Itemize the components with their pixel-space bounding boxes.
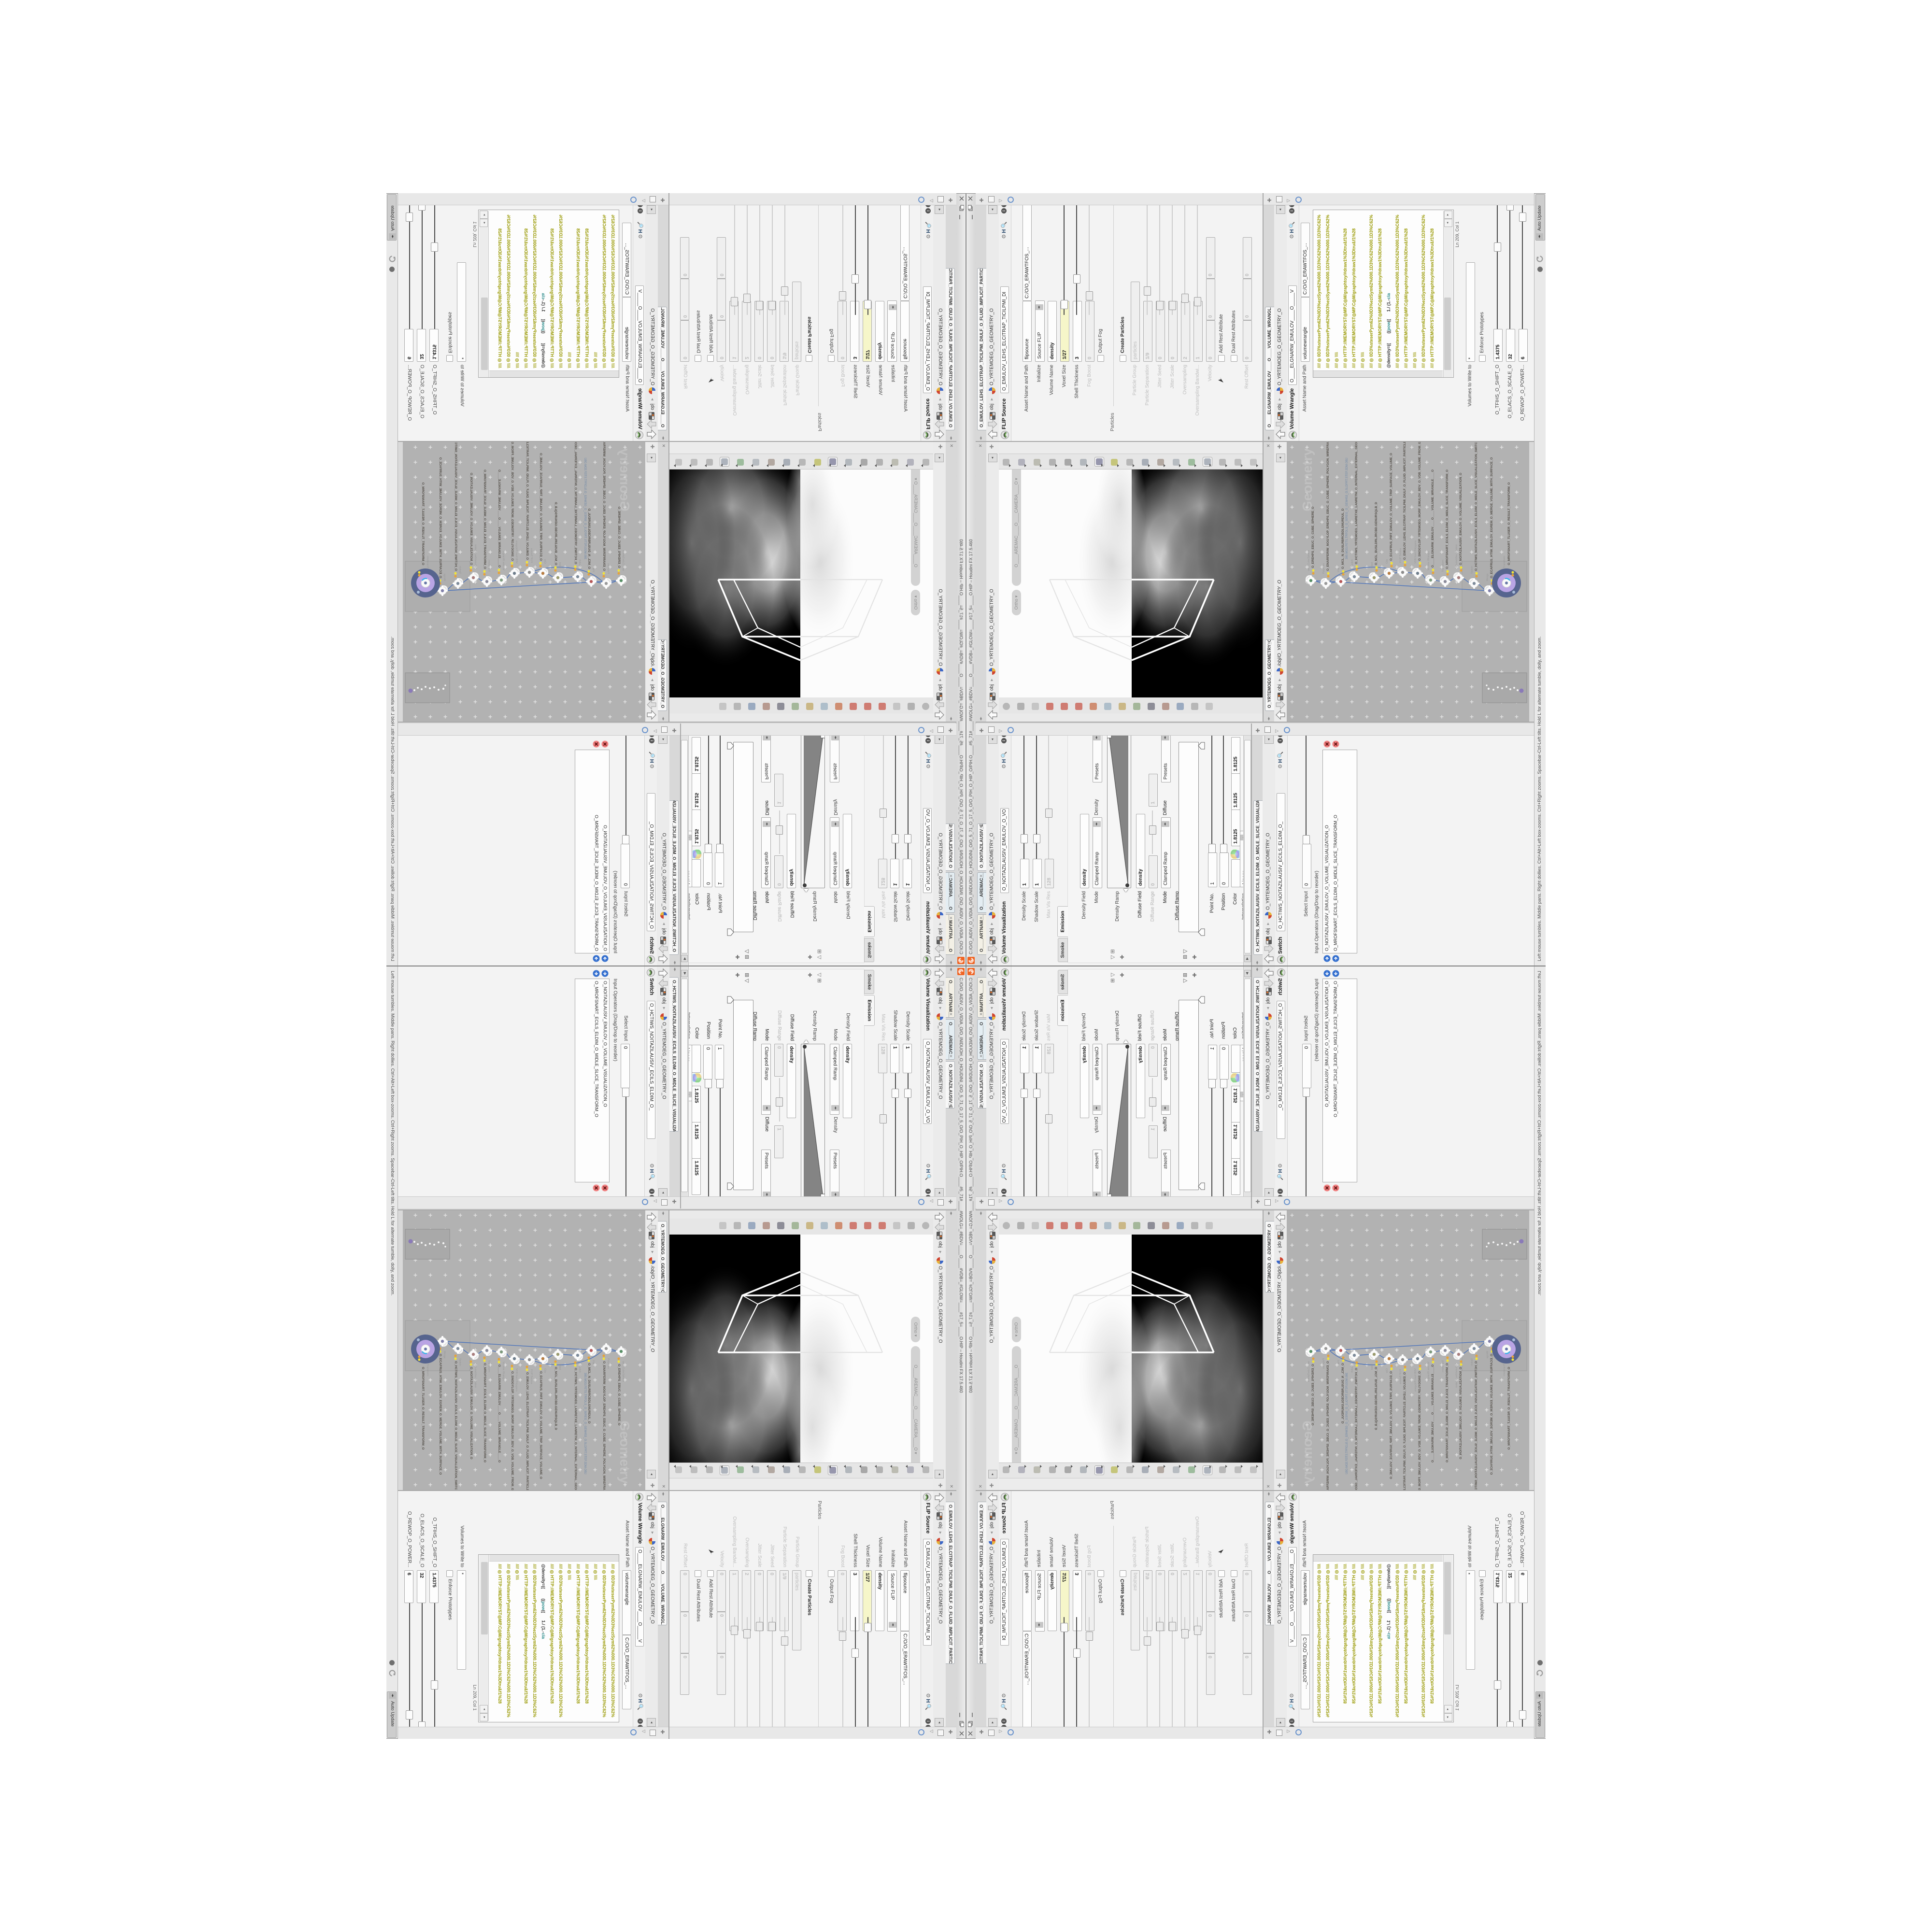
svg-text:O_NOITAZILAUSIV_EMULOV_O_VOLUM: O_NOITAZILAUSIV_EMULOV_O_VOLUME_VISUALIZ… xyxy=(1459,473,1463,565)
svg-text:Clip: Clip xyxy=(1386,559,1389,564)
svg-text:PolyWire: PolyWire xyxy=(1322,1358,1325,1369)
svg-text:Merge: Merge xyxy=(1486,1351,1489,1359)
svg-text:VolumeVisualization: VolumeVisualization xyxy=(1455,544,1458,568)
svg-text:PolyWire: PolyWire xyxy=(607,563,610,574)
svg-text:Transform: Transform xyxy=(1503,556,1506,568)
svg-text:O____ELGNARW_EMULOV____O____VO: O____ELGNARW_EMULOV____O____VOLUME_WRANG… xyxy=(497,469,501,568)
svg-text:O_HCTIWS_YRTEMOEG_LANRETXE_LAN: O_HCTIWS_YRTEMOEG_LANRETXE_LANRETNI_O_IN… xyxy=(574,1368,577,1490)
svg-text:ao__CubeSphere: ao__CubeSphere xyxy=(1307,1361,1310,1382)
svg-text:O_MCL_N_DUSLRBRCBDLGNURDUL_D: O_MCL_N_DUSLRBRCBDLGNURDUL_D xyxy=(587,1363,591,1424)
svg-text:O_ENARFERIW_NOGYLOP_EREHPS_EBU: O_ENARFERIW_NOGYLOP_EREHPS_EBUC_O_CUBE_S… xyxy=(602,1361,606,1490)
svg-text:Volume Wrangle: Volume Wrangle xyxy=(502,551,505,570)
svg-text:O_HCTIWS_YRTEMOEG_LANRETXE_LAN: O_HCTIWS_YRTEMOEG_LANRETXE_LANRETNI_O_IN… xyxy=(1355,1368,1358,1490)
svg-text:O_MCL_N_DUSLRBRCBDLGNURDUL_D: O_MCL_N_DUSLRBRCBDLGNURDUL_D xyxy=(1341,508,1345,569)
svg-text:Transform: Transform xyxy=(1442,1360,1445,1372)
svg-text:O_SNOGYLOP_YRTEMOEG_MORF_EMULO: O_SNOGYLOP_YRTEMOEG_MORF_EMULOV_BDV_O_VD… xyxy=(1418,442,1421,561)
svg-text:380.MO3.PETS.TRPDLS_O_50REG_O_: 380.MO3.PETS.TRPDLS_O_50REG_O_GEM453_O.S… xyxy=(1346,1373,1349,1474)
svg-text:O_EMULOV_LEHS_ELCITRAP_TICILPM: O_EMULOV_LEHS_ELCITRAP_TICILPMI_DIULF_O_… xyxy=(1403,442,1406,560)
svg-text:O_MROFSNART_ECILS_ELDIM_O_MIDL: O_MROFSNART_ECILS_ELDIM_O_MIDLE_SLICE_TR… xyxy=(1446,1363,1449,1463)
svg-text:O_NOITAZILAUSIV_EMULOV_O_VOLUM: O_NOITAZILAUSIV_EMULOV_O_VOLUME_VISUALIZ… xyxy=(469,473,473,565)
svg-text:Volume Wrangle: Volume Wrangle xyxy=(1427,551,1430,570)
svg-text:O_MCL_N_DUSLRBRCBDLGNURDUL_D: O_MCL_N_DUSLRBRCBDLGNURDUL_D xyxy=(587,508,591,569)
svg-text:Transform: Transform xyxy=(1503,1364,1506,1376)
svg-text:VolumeVisualization: VolumeVisualization xyxy=(474,1364,477,1388)
svg-text:Transform: Transform xyxy=(487,1360,490,1372)
svg-text:O_SNOGYLOP_YRTEMOEG_MORF_EMULO: O_SNOGYLOP_YRTEMOEG_MORF_EMULOV_BDV_O_VD… xyxy=(511,442,514,561)
svg-text:O_NOITAZILAUSIV_EMULOV_O_VOLUM: O_NOITAZILAUSIV_EMULOV_O_VOLUME_VISUALIZ… xyxy=(469,1367,473,1459)
svg-text:O_HCTIWS_YRTEMOEG_LANRETXE_LAN: O_HCTIWS_YRTEMOEG_LANRETXE_LANRETNI_O_IN… xyxy=(574,442,577,564)
svg-text:380.MO3.PETS.TRPDLS_O_50REG_O_: 380.MO3.PETS.TRPDLS_O_50REG_O_GEM453_O.S… xyxy=(583,458,586,559)
svg-text:O_NCL_BUSLDRLJRCBD.GENURSQLB_D: O_NCL_BUSLDRLJRCBD.GENURSQLB_D xyxy=(554,1367,557,1430)
svg-text:Switch: Switch xyxy=(458,566,461,574)
svg-text:Switch: Switch xyxy=(1351,1365,1354,1373)
svg-text:O_ECAFRUS_HTIW_EMULOV_EGREM_O_: O_ECAFRUS_HTIW_EMULOV_EGREM_O_MERGE_VOLU… xyxy=(1490,1354,1493,1475)
svg-text:File: File xyxy=(1337,1360,1340,1364)
svg-text:O_ECAFRUS_PIRT_EMULOV_O_VOLUME: O_ECAFRUS_PIRT_EMULOV_O_VOLUME_TRIP_SURF… xyxy=(1390,1371,1393,1479)
svg-text:Geometry: Geometry xyxy=(1300,1421,1315,1484)
svg-text:O_ECAFRUS_HTIW_EMULOV_EGREM_O_: O_ECAFRUS_HTIW_EMULOV_EGREM_O_MERGE_VOLU… xyxy=(1490,457,1493,578)
svg-text:Switch: Switch xyxy=(1471,566,1474,574)
svg-text:Volume Wrangle: Volume Wrangle xyxy=(1427,1362,1430,1381)
svg-text:Switch: Switch xyxy=(578,559,581,567)
svg-text:Clip: Clip xyxy=(543,1368,546,1373)
svg-text:O_ECAFRUS_PIRT_EMULOV_O_VOLUME: O_ECAFRUS_PIRT_EMULOV_O_VOLUME_TRIP_SURF… xyxy=(539,453,542,561)
svg-text:Switch: Switch xyxy=(578,1365,581,1373)
svg-text:O_SNOGYLOP_YRTEMOEG_MORF_EMULO: O_SNOGYLOP_YRTEMOEG_MORF_EMULOV_BDV_O_VD… xyxy=(1418,1371,1421,1490)
svg-text:O_MROFSNART_TLUSER_O_RESULT_TR: O_MROFSNART_TLUSER_O_RESULT_TRANSFORM_O xyxy=(421,1367,425,1449)
svg-text:O_NCL_BUSLDRLJRCBD.GENURSQLB_D: O_NCL_BUSLDRLJRCBD.GENURSQLB_D xyxy=(554,502,557,565)
svg-text:O____ELGNARW_EMULOV____O____VO: O____ELGNARW_EMULOV____O____VOLUME_WRANG… xyxy=(497,1364,501,1463)
svg-text:Transform: Transform xyxy=(426,1364,429,1376)
svg-text:O_MROFSNART_ECILS_ELDIM_O_MIDL: O_MROFSNART_ECILS_ELDIM_O_MIDLE_SLICE_TR… xyxy=(483,1363,486,1463)
svg-text:O_EREHPS_EBUC_O_CUBE_SPHERE_O: O_EREHPS_EBUC_O_CUBE_SPHERE_O xyxy=(1311,1364,1315,1425)
svg-text:Blast: Blast xyxy=(558,1364,561,1370)
svg-text:Geometry: Geometry xyxy=(1300,448,1315,511)
svg-text:File: File xyxy=(592,1360,595,1364)
svg-text:Merge: Merge xyxy=(443,573,446,581)
svg-text:FLIP Source: FLIP Source xyxy=(530,548,533,563)
svg-text:Merge: Merge xyxy=(443,1351,446,1359)
svg-text:Blast: Blast xyxy=(558,562,561,568)
svg-text:O_MROFSNART_ECILS_ELDIM_O_MIDL: O_MROFSNART_ECILS_ELDIM_O_MIDLE_SLICE_TR… xyxy=(1446,469,1449,569)
svg-text:O____ELGNARW_EMULOV____O____VO: O____ELGNARW_EMULOV____O____VOLUME_WRANG… xyxy=(1431,1364,1435,1463)
svg-text:ao__CubeSphere: ao__CubeSphere xyxy=(622,550,625,571)
svg-text:File: File xyxy=(1337,568,1340,572)
svg-text:Volume Wrangle: Volume Wrangle xyxy=(502,1362,505,1381)
svg-text:Transform: Transform xyxy=(426,556,429,568)
svg-text:O_EMULOV_LEHS_ELCITRAP_TICILPM: O_EMULOV_LEHS_ELCITRAP_TICILPMI_DIULF_O_… xyxy=(526,1372,529,1490)
svg-text:O_NCL_BUSLDRLJRCBD.GENURSQLB_D: O_NCL_BUSLDRLJRCBD.GENURSQLB_D xyxy=(1375,1367,1378,1430)
svg-text:PolyWire: PolyWire xyxy=(1322,563,1325,574)
svg-text:FLIP Source: FLIP Source xyxy=(1399,1369,1402,1384)
svg-text:FLIP Source: FLIP Source xyxy=(1399,548,1402,563)
svg-text:Clip: Clip xyxy=(543,559,546,564)
svg-text:Switch: Switch xyxy=(1351,559,1354,567)
svg-text:O_ECAFRUS_PIRT_EMULOV_O_VOLUME: O_ECAFRUS_PIRT_EMULOV_O_VOLUME_TRIP_SURF… xyxy=(539,1371,542,1479)
svg-text:O_EMULOV_LEHS_ELCITRAP_TICILPM: O_EMULOV_LEHS_ELCITRAP_TICILPMI_DIULF_O_… xyxy=(526,442,529,560)
svg-text:O_NCL_BUSLDRLJRCBD.GENURSQLB_D: O_NCL_BUSLDRLJRCBD.GENURSQLB_D xyxy=(1375,502,1378,565)
svg-text:O_MROFSNART_ECILS_ELDIM_O_MIDL: O_MROFSNART_ECILS_ELDIM_O_MIDLE_SLICE_TR… xyxy=(483,469,486,569)
svg-text:Blast: Blast xyxy=(1371,1364,1374,1370)
svg-text:Transform: Transform xyxy=(487,560,490,572)
svg-text:Clip: Clip xyxy=(1386,1368,1389,1373)
svg-text:O_SNOGYLOP_YRTEMOEG_MORF_EMULO: O_SNOGYLOP_YRTEMOEG_MORF_EMULOV_BDV_O_VD… xyxy=(511,1371,514,1490)
svg-text:Merge: Merge xyxy=(1486,573,1489,581)
svg-text:O_HCTIWS_NOITAZILAUSIV_ECILS_E: O_HCTIWS_NOITAZILAUSIV_ECILS_ELDIM_O_MID… xyxy=(454,442,457,571)
svg-text:Switch: Switch xyxy=(1471,1358,1474,1366)
svg-text:File: File xyxy=(592,568,595,572)
svg-text:Geometry: Geometry xyxy=(617,1421,632,1484)
svg-text:VDB from Polygons: VDB from Polygons xyxy=(515,540,518,564)
svg-text:VolumeVisualization: VolumeVisualization xyxy=(1455,1364,1458,1388)
svg-text:O_MCL_N_DUSLRBRCBDLGNURDUL_D: O_MCL_N_DUSLRBRCBDLGNURDUL_D xyxy=(1341,1363,1345,1424)
svg-text:ao__CubeSphere: ao__CubeSphere xyxy=(1307,550,1310,571)
svg-text:O_EREHPS_EBUC_O_CUBE_SPHERE_O: O_EREHPS_EBUC_O_CUBE_SPHERE_O xyxy=(617,507,621,568)
svg-text:O_NOITAZILAUSIV_EMULOV_O_VOLUM: O_NOITAZILAUSIV_EMULOV_O_VOLUME_VISUALIZ… xyxy=(1459,1367,1463,1459)
svg-text:Switch: Switch xyxy=(458,1358,461,1366)
svg-text:O_ECAFRUS_HTIW_EMULOV_EGREM_O_: O_ECAFRUS_HTIW_EMULOV_EGREM_O_MERGE_VOLU… xyxy=(439,1354,442,1475)
svg-text:VolumeVisualization: VolumeVisualization xyxy=(474,544,477,568)
svg-text:O_ENARFERIW_NOGYLOP_EREHPS_EBU: O_ENARFERIW_NOGYLOP_EREHPS_EBUC_O_CUBE_S… xyxy=(1326,1361,1330,1490)
svg-text:O_MROFSNART_TLUSER_O_RESULT_TR: O_MROFSNART_TLUSER_O_RESULT_TRANSFORM_O xyxy=(1507,1367,1511,1449)
svg-text:O_HCTIWS_NOITAZILAUSIV_ECILS_E: O_HCTIWS_NOITAZILAUSIV_ECILS_ELDIM_O_MID… xyxy=(1475,442,1478,571)
svg-text:O_EREHPS_EBUC_O_CUBE_SPHERE_O: O_EREHPS_EBUC_O_CUBE_SPHERE_O xyxy=(1311,507,1315,568)
svg-text:VDB from Polygons: VDB from Polygons xyxy=(1414,1368,1417,1392)
svg-text:380.MO3.PETS.TRPDLS_O_50REG_O_: 380.MO3.PETS.TRPDLS_O_50REG_O_GEM453_O.S… xyxy=(1346,458,1349,559)
svg-text:Transform: Transform xyxy=(1442,560,1445,572)
svg-text:ao__CubeSphere: ao__CubeSphere xyxy=(622,1361,625,1382)
svg-text:O_EMULOV_LEHS_ELCITRAP_TICILPM: O_EMULOV_LEHS_ELCITRAP_TICILPMI_DIULF_O_… xyxy=(1403,1372,1406,1490)
svg-text:VDB from Polygons: VDB from Polygons xyxy=(1414,540,1417,564)
svg-text:O____ELGNARW_EMULOV____O____VO: O____ELGNARW_EMULOV____O____VOLUME_WRANG… xyxy=(1431,469,1435,568)
svg-text:O_EREHPS_EBUC_O_CUBE_SPHERE_O: O_EREHPS_EBUC_O_CUBE_SPHERE_O xyxy=(617,1364,621,1425)
svg-text:PolyWire: PolyWire xyxy=(607,1358,610,1369)
svg-text:380.MO3.PETS.TRPDLS_O_50REG_O_: 380.MO3.PETS.TRPDLS_O_50REG_O_GEM453_O.S… xyxy=(583,1373,586,1474)
svg-text:FLIP Source: FLIP Source xyxy=(530,1369,533,1384)
svg-text:O_MROFSNART_TLUSER_O_RESULT_TR: O_MROFSNART_TLUSER_O_RESULT_TRANSFORM_O xyxy=(421,483,425,565)
svg-text:O_ECAFRUS_HTIW_EMULOV_EGREM_O_: O_ECAFRUS_HTIW_EMULOV_EGREM_O_MERGE_VOLU… xyxy=(439,457,442,578)
svg-text:O_ENARFERIW_NOGYLOP_EREHPS_EBU: O_ENARFERIW_NOGYLOP_EREHPS_EBUC_O_CUBE_S… xyxy=(1326,442,1330,571)
svg-text:O_HCTIWS_NOITAZILAUSIV_ECILS_E: O_HCTIWS_NOITAZILAUSIV_ECILS_ELDIM_O_MID… xyxy=(454,1361,457,1490)
svg-text:Geometry: Geometry xyxy=(617,448,632,511)
svg-text:O_HCTIWS_NOITAZILAUSIV_ECILS_E: O_HCTIWS_NOITAZILAUSIV_ECILS_ELDIM_O_MID… xyxy=(1475,1361,1478,1490)
svg-text:O_ENARFERIW_NOGYLOP_EREHPS_EBU: O_ENARFERIW_NOGYLOP_EREHPS_EBUC_O_CUBE_S… xyxy=(602,442,606,571)
svg-text:O_MROFSNART_TLUSER_O_RESULT_TR: O_MROFSNART_TLUSER_O_RESULT_TRANSFORM_O xyxy=(1507,483,1511,565)
svg-text:O_HCTIWS_YRTEMOEG_LANRETXE_LAN: O_HCTIWS_YRTEMOEG_LANRETXE_LANRETNI_O_IN… xyxy=(1355,442,1358,564)
svg-text:O_ECAFRUS_PIRT_EMULOV_O_VOLUME: O_ECAFRUS_PIRT_EMULOV_O_VOLUME_TRIP_SURF… xyxy=(1390,453,1393,561)
svg-text:Blast: Blast xyxy=(1371,562,1374,568)
svg-text:VDB from Polygons: VDB from Polygons xyxy=(515,1368,518,1392)
